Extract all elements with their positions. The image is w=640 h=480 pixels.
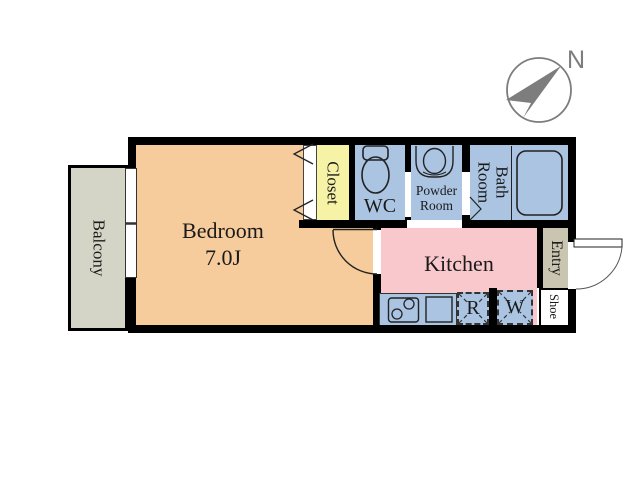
entry-door-opening [568,242,576,289]
kitchen-counter [379,293,457,325]
bedroom-size: 7.0J [205,244,241,271]
balcony-label: Balcony [68,165,128,331]
entry-door-swing-arc [574,239,622,289]
compass-north-arrow-icon [506,58,571,122]
wall [489,288,497,325]
wc-label: WC [355,194,405,218]
outer-wall-top [128,137,576,145]
north-text: N [567,46,585,75]
compass-north-label: N [563,45,589,75]
closet-door-strip [303,145,317,220]
entry-label: Entry [543,228,568,288]
wall [299,220,407,228]
kitchen-door-opening [373,230,381,274]
refrigerator-label: R [457,292,489,325]
bedroom-label: Bedroom 7.0J [134,216,312,272]
closet-label: Closet [317,145,349,220]
shoe-label: Shoe [539,288,568,325]
bath-room-label: Bath Room [470,145,514,220]
powder-room-opening [407,220,462,228]
floor-plan: N Balcony Bedroom 7.0J Closet WC Powder … [0,0,640,480]
kitchen-label: Kitchen [381,249,537,279]
powder-room-label: Powder Room [409,181,464,217]
outer-wall-right [568,137,576,333]
wall [462,220,576,228]
washer-label: W [497,290,533,325]
outer-wall-bottom [128,325,576,333]
bedroom-name: Bedroom [182,217,264,244]
